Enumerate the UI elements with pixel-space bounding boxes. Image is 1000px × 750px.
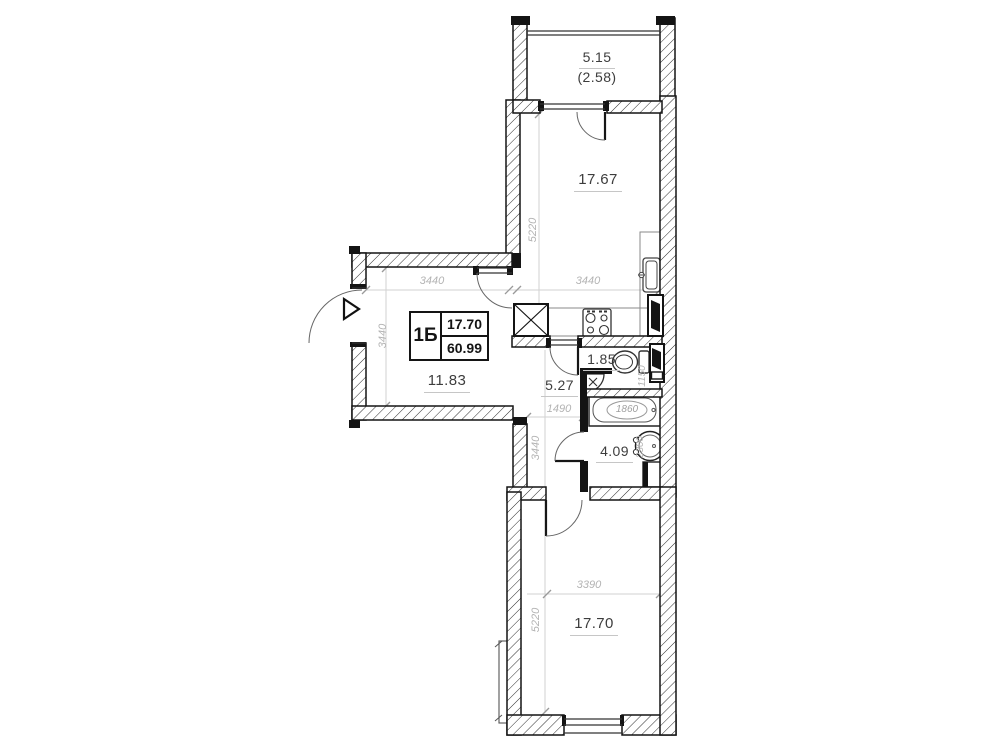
dim-wc-depth: 1150 [636,356,650,396]
pilaster [495,641,508,723]
balcony-area: 5.15 [579,49,616,69]
balcony-label: 5.15 (2.58) [562,49,632,86]
dim-corridor-width: 1490 [539,402,579,416]
hall-label: 11.83 [417,372,477,393]
corridor-label: 5.27 [532,377,587,397]
kitchen-label: 17.67 [568,171,628,192]
dim-corridor-depth: 3440 [529,428,543,468]
stove [583,309,611,337]
dim-kitchen-width: 3440 [568,274,608,288]
bedroom-label: 17.70 [564,615,624,636]
bedroom-door-arc [546,500,582,536]
dim-bedroom-depth: 5220 [529,600,543,640]
kitchen-sink [638,258,660,292]
wc-label: 1.85 [574,351,629,371]
dim-hall-width: 3440 [412,274,452,288]
floorplan-drawing [0,0,1000,750]
exterior-walls [352,18,676,735]
dim-hall-depth: 3440 [376,316,390,356]
floorplan: 1Б 17.70 60.99 5.15 (2.58) 17.67 11.83 5… [0,0,1000,750]
dim-bathtub-length: 1860 [607,403,647,417]
unit-type-label: 1Б [411,313,442,359]
entrance-door-arc [309,290,362,343]
bathroom-door-arc [555,432,584,461]
unit-type-box: 1Б 17.70 60.99 [409,311,489,361]
entrance-arrow [344,299,359,319]
unit-total-area: 60.99 [442,337,487,359]
balcony-door-arc [577,112,605,140]
unit-living-area: 17.70 [442,313,487,337]
balcony-reduced-area: (2.58) [578,69,617,85]
dim-bedroom-width: 3390 [569,578,609,592]
dim-bathroom-depth: 2300 [634,427,648,467]
dim-kitchen-depth: 5220 [526,210,540,250]
vent-shaft [514,304,548,336]
